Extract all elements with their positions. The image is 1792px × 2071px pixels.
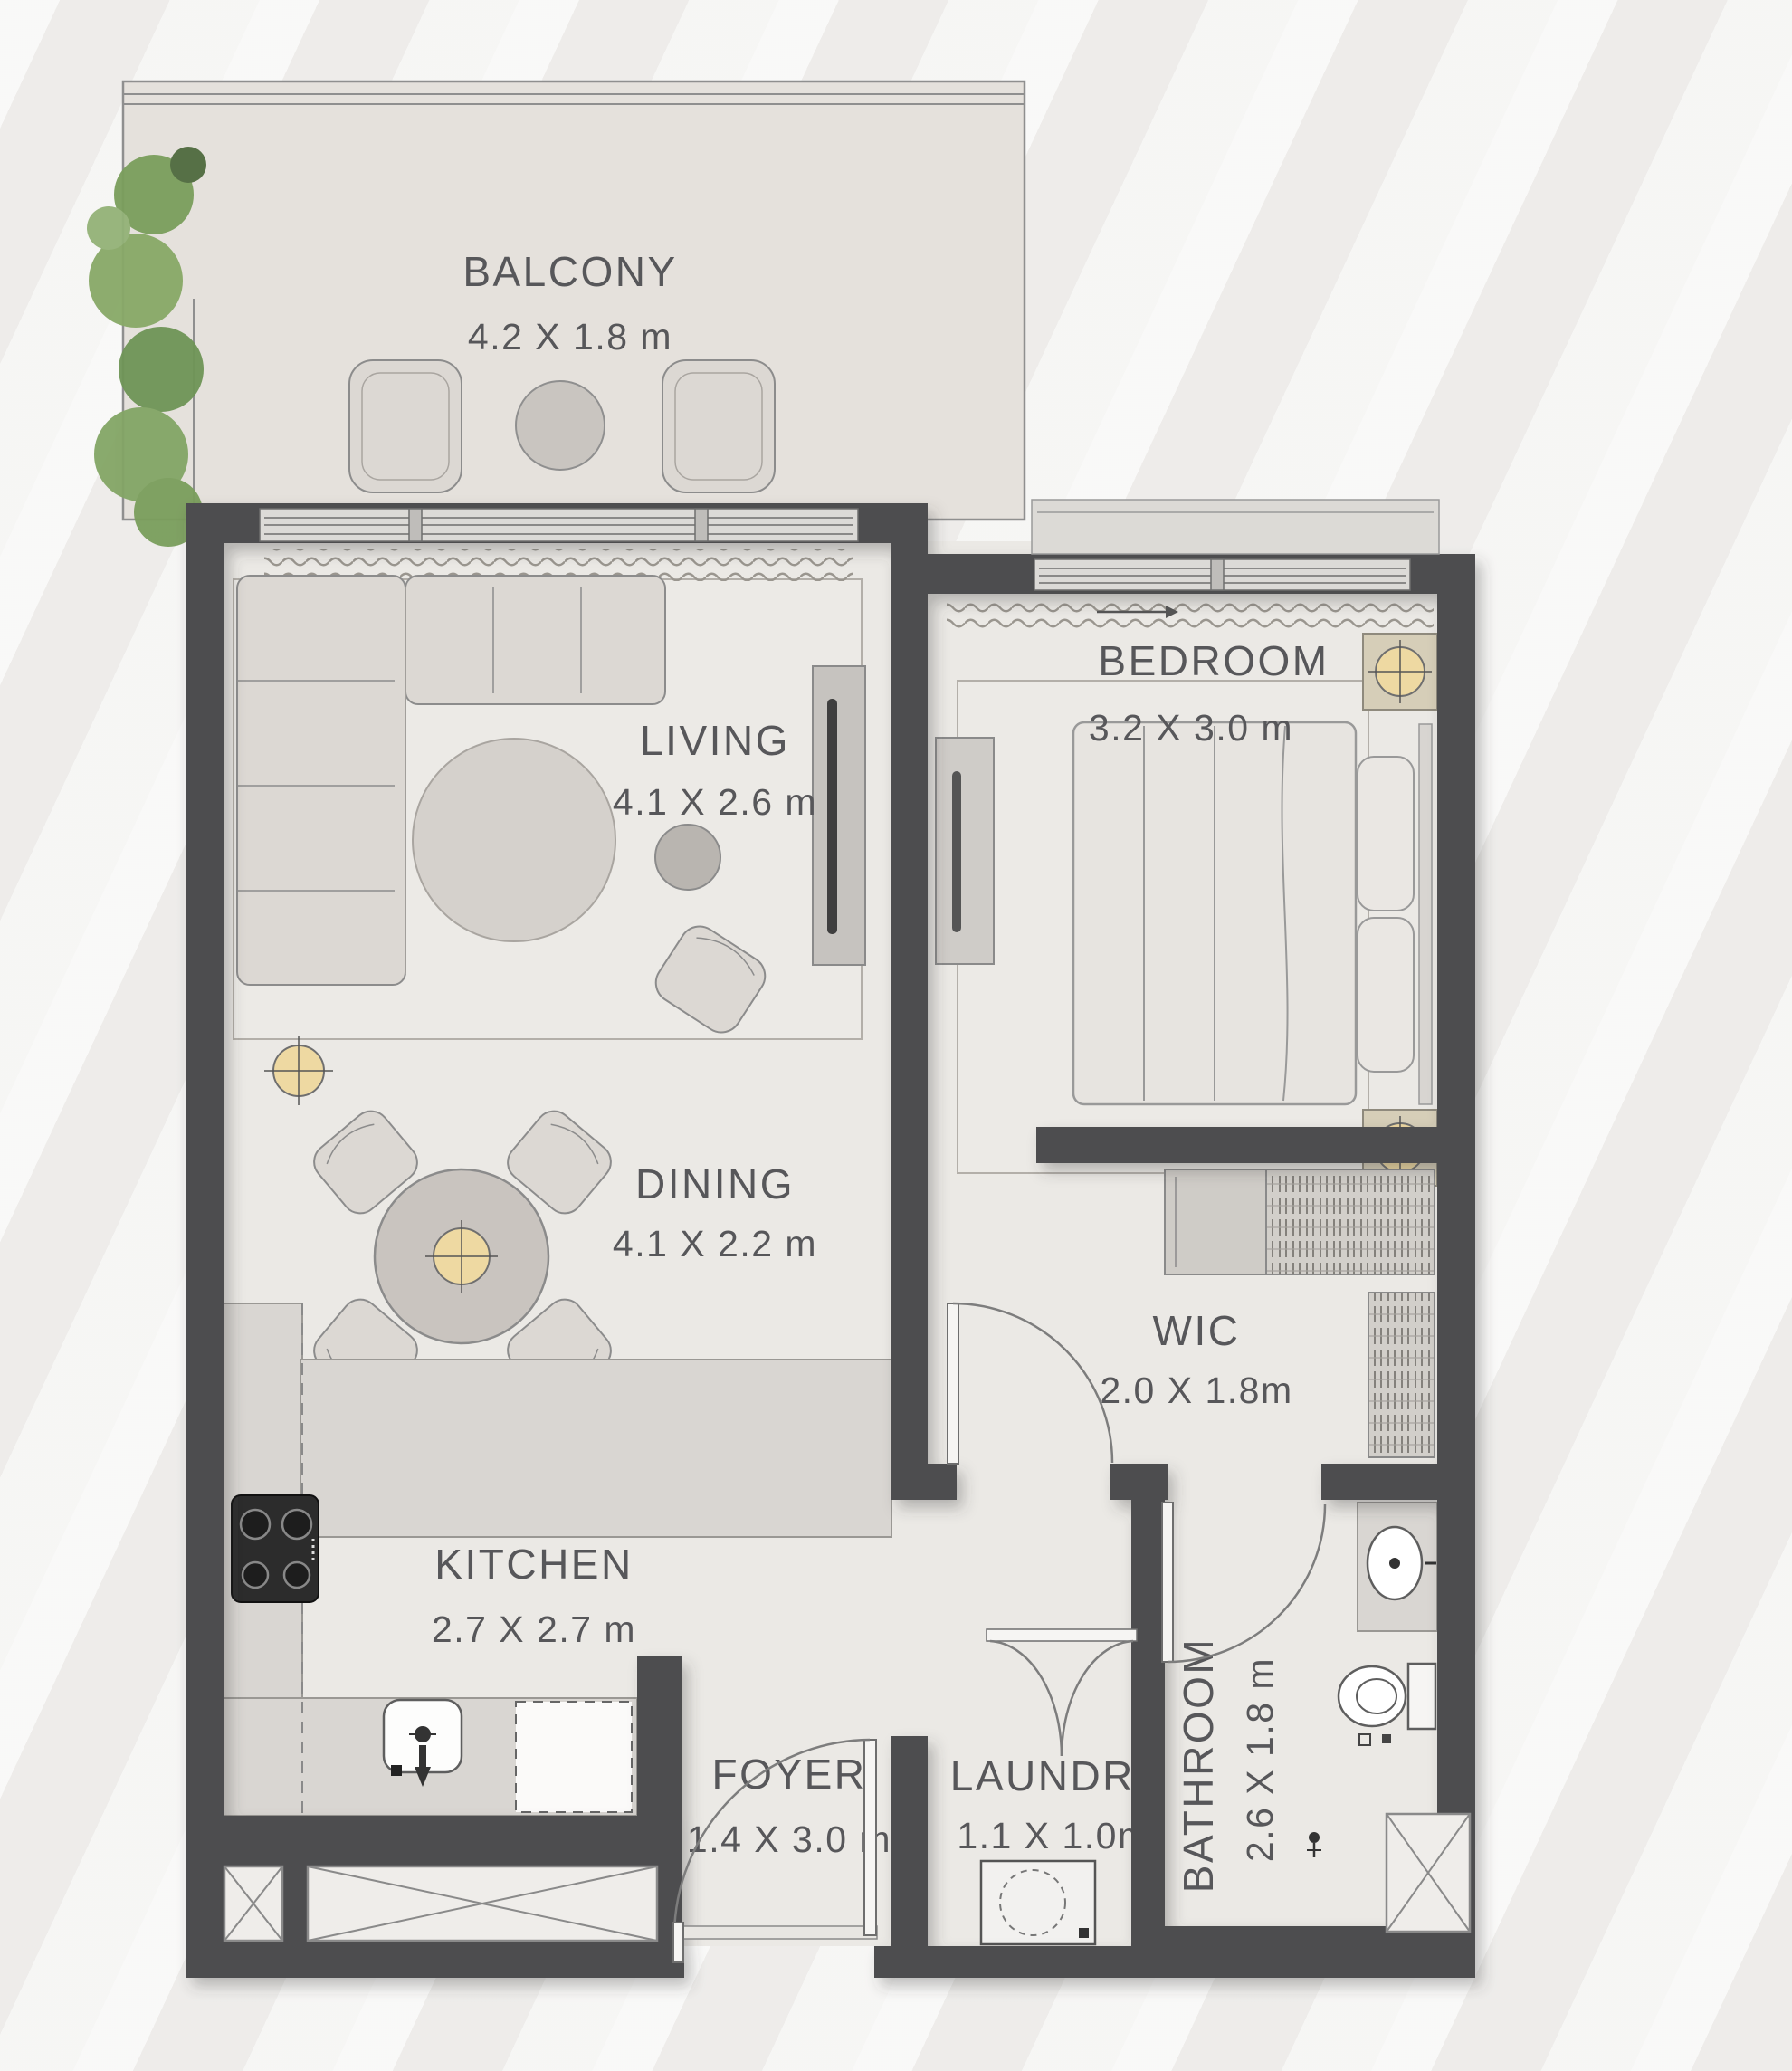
stove-icon — [232, 1495, 319, 1602]
washing-machine-icon — [981, 1861, 1095, 1944]
shaft-box — [224, 1866, 282, 1941]
living-window — [260, 509, 858, 541]
room-label-bathroom: BATHROOM — [1175, 1637, 1222, 1893]
balcony-chair — [662, 360, 775, 492]
room-label-dining: DINING — [635, 1160, 795, 1207]
dishwasher — [516, 1702, 632, 1812]
living-room: LIVING 4.1 X 2.6 m — [234, 549, 865, 1105]
tv-console — [813, 666, 865, 965]
shaft-box — [1387, 1814, 1470, 1932]
room-label-bedroom: BEDROOM — [1098, 637, 1329, 684]
room-dims-balcony: 4.2 X 1.8 m — [468, 316, 672, 358]
room-label-living: LIVING — [640, 717, 790, 764]
wic-cabinet — [1165, 1169, 1266, 1274]
curtain-icon — [947, 597, 1434, 630]
room-dims-kitchen: 2.7 X 2.7 m — [432, 1608, 636, 1650]
side-table — [655, 825, 720, 890]
balcony-chair — [349, 360, 462, 492]
tv-icon — [952, 771, 961, 932]
coffee-table — [413, 739, 615, 941]
balcony: BALCONY 4.2 X 1.8 m — [87, 81, 1025, 547]
wic-wardrobe — [1266, 1169, 1435, 1274]
shaft-box — [308, 1866, 657, 1941]
page-background: BALCONY 4.2 X 1.8 m — [0, 0, 1792, 2071]
room-dims-wic: 2.0 X 1.8m — [1100, 1370, 1292, 1411]
tv-icon — [827, 699, 837, 934]
room-label-wic: WIC — [1153, 1307, 1241, 1354]
room-dims-dining: 4.1 X 2.2 m — [613, 1223, 817, 1265]
pillow — [1358, 918, 1414, 1072]
exterior-ledge — [1032, 500, 1439, 554]
room-dims-bathroom: 2.6 X 1.8 m — [1239, 1657, 1281, 1862]
room-label-balcony: BALCONY — [462, 248, 677, 295]
room-dims-foyer: 1.4 X 3.0 m — [687, 1818, 891, 1860]
balcony-table — [516, 381, 605, 470]
bedroom: BEDROOM 3.2 X 3.0 m — [936, 597, 1437, 1186]
kitchen-island — [300, 1360, 891, 1537]
room-dims-bedroom: 3.2 X 3.0 m — [1089, 707, 1293, 749]
floor-plan: BALCONY 4.2 X 1.8 m — [0, 0, 1792, 2071]
plant-icon — [87, 147, 206, 547]
headboard — [1419, 724, 1432, 1104]
vanity — [1358, 1503, 1437, 1631]
pillow — [1358, 757, 1414, 911]
room-label-kitchen: KITCHEN — [434, 1541, 633, 1588]
wic-wardrobe — [1368, 1293, 1435, 1457]
room-dims-living: 4.1 X 2.6 m — [613, 781, 817, 823]
nightstand — [1363, 634, 1437, 710]
bedroom-dresser — [936, 738, 994, 964]
room-dims-laundry: 1.1 X 1.0m — [957, 1815, 1149, 1856]
